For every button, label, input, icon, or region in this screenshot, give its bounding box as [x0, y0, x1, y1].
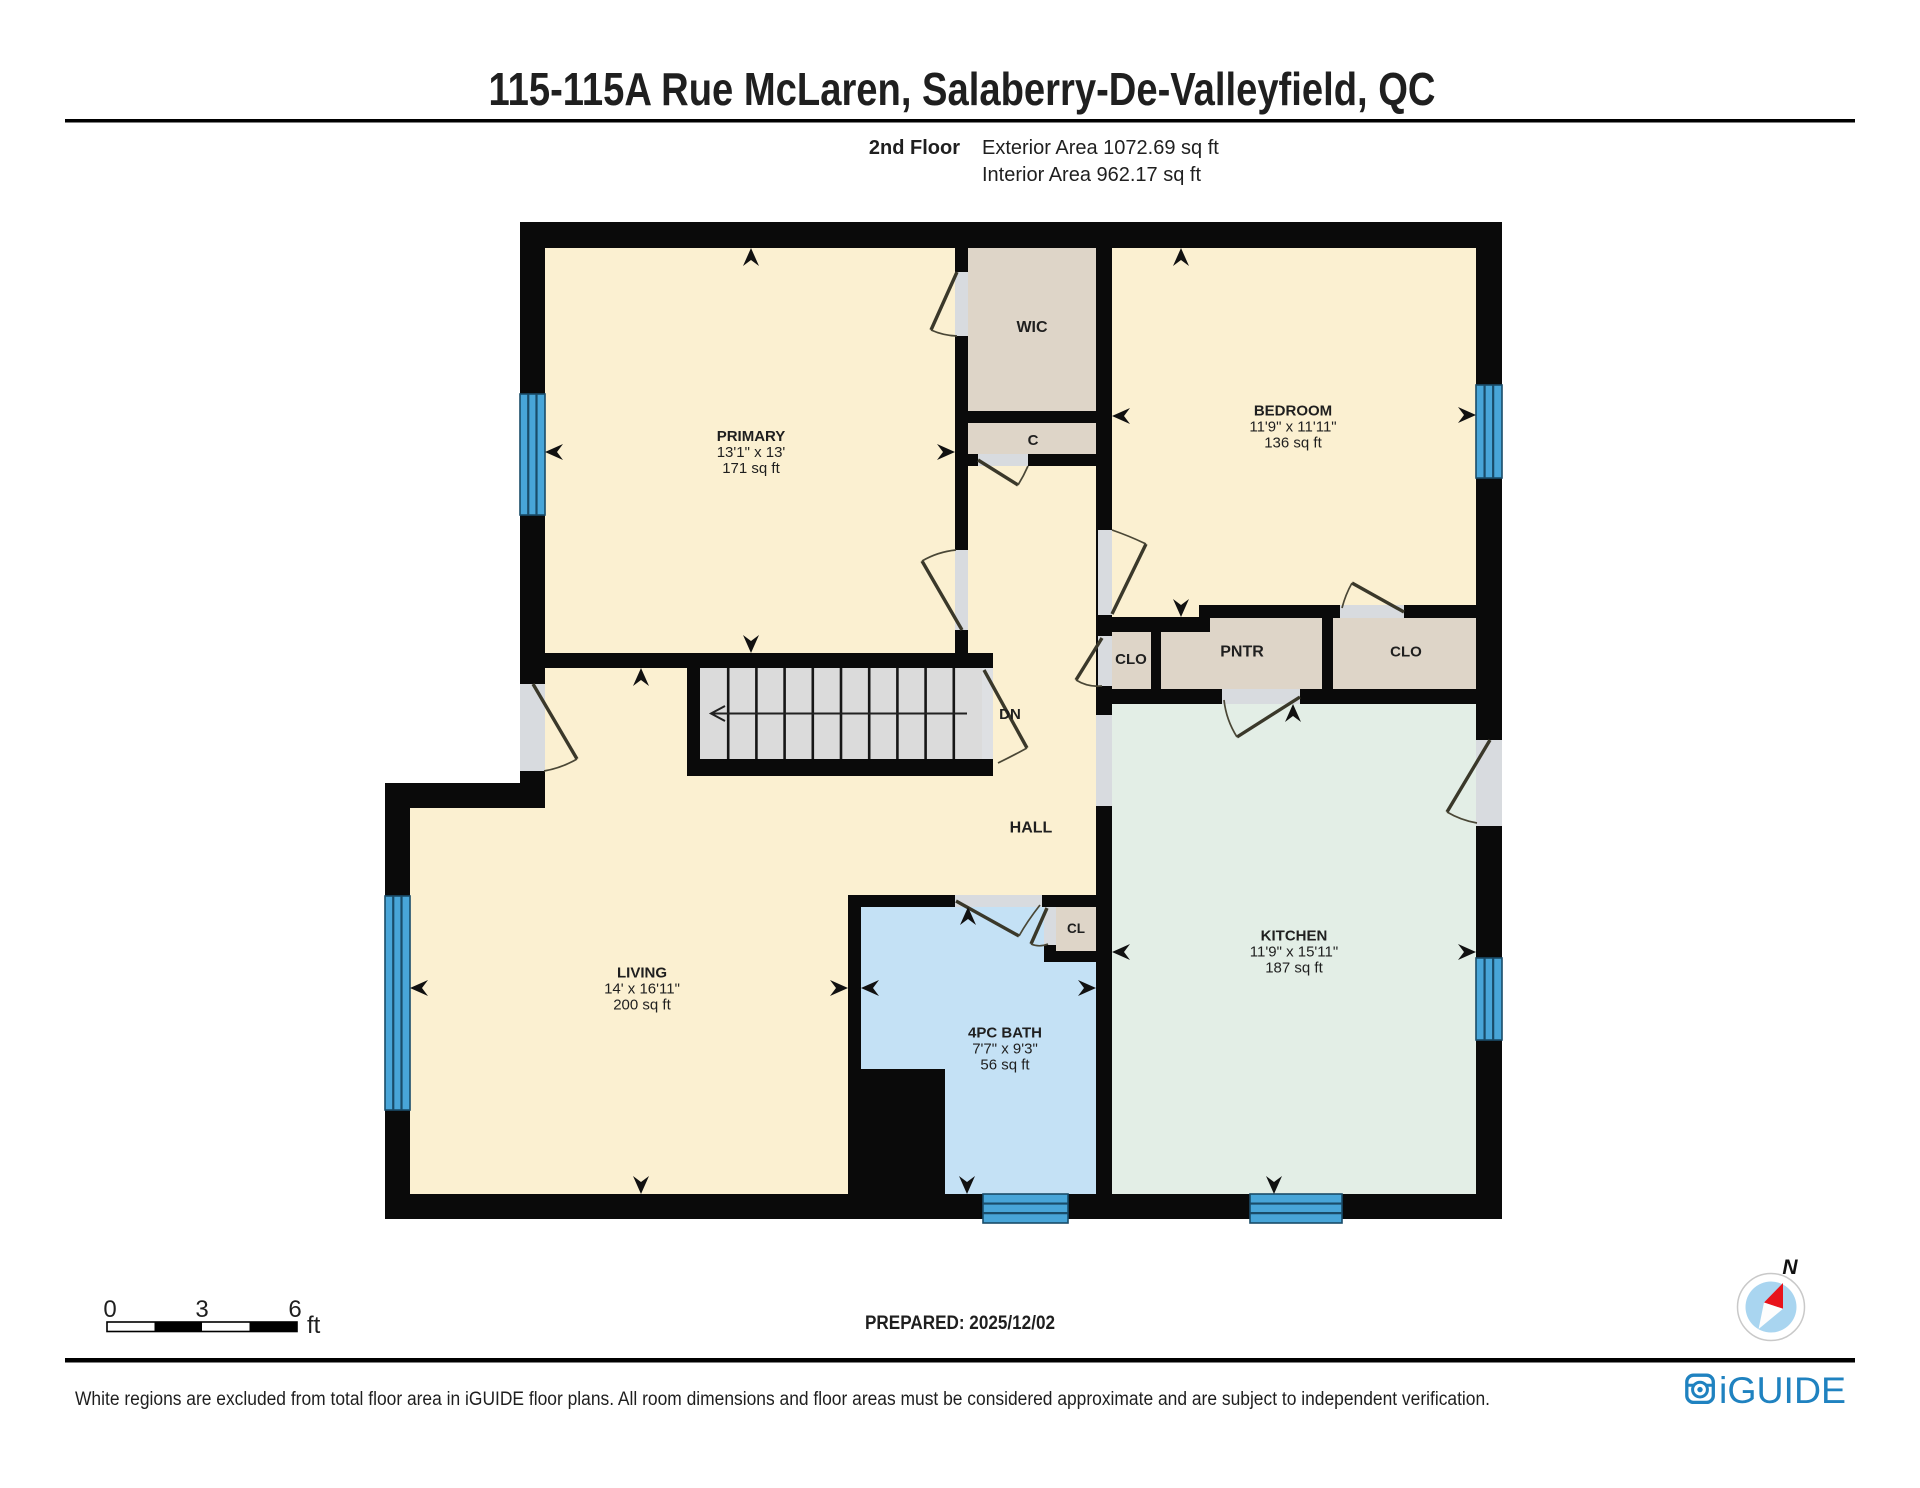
svg-text:2nd Floor: 2nd Floor: [869, 137, 960, 159]
svg-text:BEDROOM: BEDROOM: [1254, 403, 1332, 420]
svg-text:iGUIDE: iGUIDE: [1719, 1370, 1846, 1411]
svg-text:WIC: WIC: [1016, 319, 1048, 336]
svg-text:56 sq ft: 56 sq ft: [980, 1057, 1030, 1074]
svg-text:White regions are excluded fro: White regions are excluded from total fl…: [75, 1389, 1490, 1410]
svg-text:Interior Area 962.17 sq ft: Interior Area 962.17 sq ft: [982, 164, 1201, 186]
svg-text:200 sq ft: 200 sq ft: [613, 997, 671, 1014]
svg-text:136 sq ft: 136 sq ft: [1264, 435, 1322, 452]
svg-text:4PC BATH: 4PC BATH: [968, 1025, 1042, 1042]
svg-text:11'9" x 15'11": 11'9" x 15'11": [1250, 944, 1338, 961]
svg-text:6: 6: [288, 1296, 301, 1323]
svg-text:PREPARED: 2025/12/02: PREPARED: 2025/12/02: [865, 1313, 1055, 1334]
svg-text:PNTR: PNTR: [1220, 644, 1264, 661]
svg-text:PRIMARY: PRIMARY: [717, 428, 786, 445]
svg-text:13'1" x 13': 13'1" x 13': [717, 444, 786, 461]
svg-text:171 sq ft: 171 sq ft: [722, 460, 780, 477]
svg-text:7'7" x 9'3": 7'7" x 9'3": [972, 1041, 1038, 1058]
svg-text:14' x 16'11": 14' x 16'11": [604, 981, 680, 998]
svg-text:187 sq ft: 187 sq ft: [1265, 960, 1323, 977]
svg-text:DN: DN: [999, 706, 1021, 723]
svg-text:0: 0: [103, 1296, 116, 1323]
svg-text:C: C: [1028, 432, 1039, 449]
svg-text:11'9" x 11'11": 11'9" x 11'11": [1249, 419, 1336, 436]
svg-text:Exterior Area 1072.69 sq ft: Exterior Area 1072.69 sq ft: [982, 137, 1219, 159]
svg-text:CLO: CLO: [1390, 644, 1422, 661]
svg-text:CLO: CLO: [1115, 651, 1147, 668]
svg-text:LIVING: LIVING: [617, 965, 667, 982]
svg-text:N: N: [1782, 1256, 1798, 1279]
svg-text:KITCHEN: KITCHEN: [1261, 928, 1328, 945]
svg-text:CL: CL: [1067, 921, 1085, 936]
svg-text:115-115A Rue McLaren, Salaberr: 115-115A Rue McLaren, Salaberry-De-Valle…: [489, 63, 1436, 115]
svg-text:ft: ft: [307, 1312, 321, 1339]
svg-text:3: 3: [195, 1296, 208, 1323]
svg-text:HALL: HALL: [1010, 820, 1053, 837]
